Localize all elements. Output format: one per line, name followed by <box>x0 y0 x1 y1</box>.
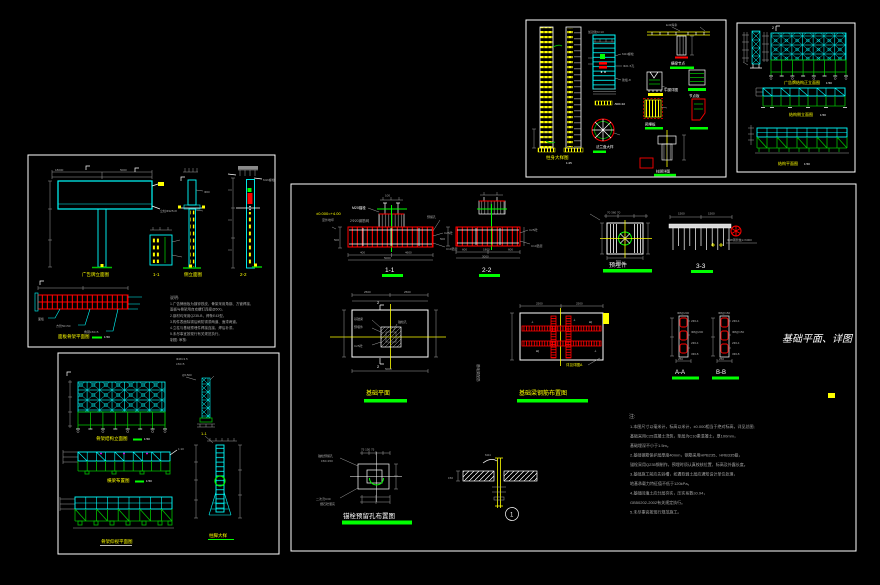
bb-r1: Φ8@150 <box>732 330 744 334</box>
anchor-ann-4: 细石砼灌实 <box>320 501 335 506</box>
side-elevation-label: 结构侧立面图 <box>789 111 813 117</box>
dim-600b: 600 <box>508 248 513 252</box>
plan-ann-3: C25砼 <box>354 343 363 348</box>
small-col-label: 1-1 <box>201 431 208 436</box>
section-flag <box>776 26 780 31</box>
beam-layout-truss <box>63 450 177 474</box>
elevation-text: ±0.000=+4.00 <box>316 211 341 216</box>
frame-elev-underline <box>133 439 142 441</box>
aa-dim: 250 <box>678 357 683 361</box>
col-ann-3: Φ21.5孔 <box>623 63 634 68</box>
section-bb-label: B-B <box>716 370 726 376</box>
dim-4600: 4600 <box>405 251 412 255</box>
plan-ann-2: 预埋件 <box>354 324 363 329</box>
anchor-ann-2: 150×150 <box>321 459 333 463</box>
aa-r3: 3Φ18 <box>691 352 699 356</box>
column-foot-detail <box>194 436 242 518</box>
section-b-b-figure <box>711 316 732 363</box>
side-elevation-truss <box>756 88 847 108</box>
col-ann-5: -500×10 <box>614 102 625 106</box>
gusset-label: 节点板 <box>689 93 700 98</box>
title-block-mark <box>828 393 835 398</box>
section-aa-underline <box>672 377 699 380</box>
hole-text: 预留孔 <box>427 214 436 219</box>
anchor-hole-layout-figure <box>340 451 402 504</box>
dim-1500b: 1500 <box>708 212 715 216</box>
plan-ann-4: 锚栓孔 <box>398 319 407 324</box>
corner-ann-2: L50×5 <box>176 362 185 366</box>
pedestal-dim: 100 <box>385 194 390 198</box>
note-line: GB50202-2002有关规定执行。 <box>630 499 685 505</box>
note-line: 2.钢材均采用Q235-B，焊条E43型。 <box>170 313 226 318</box>
note-line: 4.立柱与基础预埋件焊接连接，焊后补漆。 <box>170 325 236 330</box>
plan-label: 基础平面 <box>366 389 390 397</box>
front-elevation-scale: 1:50 <box>826 81 832 85</box>
bb-r0: 2Φ14 <box>732 319 740 323</box>
cad-sheet: 柱身大样图 1:25 加劲肋δ=10 M24螺栓 Φ21.5孔 肋板-8 -50… <box>0 0 880 585</box>
front-elevation-label: 广告牌结构正立面图 <box>784 79 820 85</box>
frame-elev-label: 骨架结构立面图 <box>96 435 128 442</box>
note-line: 4.基础回填土应分层夯实，压实系数≥0.94， <box>630 490 707 496</box>
rebar-label: 基础梁钢筋布置图 <box>519 389 567 397</box>
leader-panel: 面板 <box>38 316 44 321</box>
section-2-2-label: 2-2 <box>482 267 492 274</box>
leader-tube: 方管50×50 <box>56 323 71 328</box>
bb-r3: 3Φ18 <box>732 352 740 356</box>
dim-1500a: 1500 <box>678 212 685 216</box>
sheet-title: 基础平面、详图 <box>782 333 854 345</box>
anchor-layout-label: 锚栓预留孔布置图 <box>343 511 395 520</box>
foundation-notes: 注: 1.本图尺寸以毫米计，标高以米计，±0.000相当于绝对标高，详见总图; … <box>629 413 755 515</box>
col-ann-4: 肋板-8 <box>622 77 631 82</box>
rebar-ref-text: 详见详图A <box>566 362 583 367</box>
plan-truss-label: 结构平面图 <box>778 160 798 166</box>
anchor-ann-1: 锚栓预留孔 <box>318 453 333 458</box>
small-column-detail <box>186 376 215 427</box>
note-line: 制图: 审核: <box>170 337 187 342</box>
side-elev-label: 侧立面图 <box>184 271 202 278</box>
billboard-rear-elevation <box>228 166 262 268</box>
foundation-plan-figure <box>330 293 446 373</box>
anchor-ann-3: 二次浇C30 <box>316 496 331 501</box>
notes-block: 说明: 1.广告牌面板为镀锌铁皮，骨架采用角钢、方管焊接， 面板与骨架用自攻螺钉… <box>170 294 253 342</box>
section-3-3-underline <box>691 270 713 273</box>
note-line: 5.未尽事宜按现行规范施工。 <box>630 509 681 515</box>
small-col-ann: @1500 <box>182 373 192 377</box>
aa-top: Φ8@200 <box>677 311 689 315</box>
cushion-text-2: C10垫层 <box>531 243 543 248</box>
note-line: 3.构件表面除锈后刷防锈漆两道、面漆两道。 <box>170 319 239 324</box>
panel-plan-label: 面板骨架平面图 <box>58 333 90 340</box>
frame-elevation-grid <box>67 372 167 433</box>
panel-column-details: 柱身大样图 1:25 加劲肋δ=10 M24螺栓 Φ21.5孔 肋板-8 -50… <box>526 20 726 177</box>
callout-number: 1 <box>510 513 514 519</box>
col-ann-1: 加劲肋δ=10 <box>588 29 604 34</box>
corner-plate-detail <box>690 99 708 130</box>
plan-underline <box>364 399 407 403</box>
billboard-front-elevation <box>48 166 164 268</box>
plan-ann-1: 基础梁 <box>354 316 363 321</box>
column-base-detail <box>640 130 686 168</box>
notes-title: 注: <box>629 413 635 420</box>
drawing-canvas: 柱身大样图 1:25 加劲肋δ=10 M24螺栓 Φ21.5孔 肋板-8 -50… <box>0 0 880 585</box>
section-1-1-underline <box>382 274 403 277</box>
section-1-1-label: 1-1 <box>385 267 395 274</box>
section-marker-2: 2 <box>772 26 774 30</box>
m20-anchor-text: M20锚栓 <box>352 205 366 210</box>
bolt-dim: 150 <box>448 476 453 480</box>
column-foot-label: 柱脚大样 <box>209 532 227 539</box>
section-a-a-figure <box>670 316 691 363</box>
ann-pipe: Φ60 <box>204 190 210 194</box>
bb-top: Φ8@150 <box>718 311 730 315</box>
note-line: 锚栓采用Q235钢制作，预埋时须认真校核位置、标高及外露长度。 <box>630 461 748 467</box>
panel-border <box>526 20 726 177</box>
rebar-underline <box>517 399 588 403</box>
note-line: 1.广告牌面板为镀锌铁皮，骨架采用角钢、方管焊接， <box>170 301 253 306</box>
section-1-1-label: 1-1 <box>153 272 160 277</box>
section-2-2-underline <box>479 274 500 277</box>
panel-foundation-details: M20锚栓 100 2Φ20钢筋网 ±0.000=+4.00 室外地坪 500 … <box>291 184 856 551</box>
note-line: 1.本图尺寸以毫米计，标高以米计，±0.000相当于绝对标高，详见总图; <box>630 423 755 429</box>
rebar-dim-a: 2500 <box>536 302 543 306</box>
bb-r2: 2Φ14 <box>732 341 740 345</box>
section-3-3-label: 3-3 <box>696 263 706 270</box>
panel-frame-structure: Φ48×3.5 L50×5 骨架结构立面图 1:50 @1500 1-1 1:1… <box>58 353 279 554</box>
ann-bolt: M16螺栓 <box>263 177 275 182</box>
rear-elev-label: 2-2 <box>240 272 247 277</box>
bolt-ground-detail <box>456 458 537 521</box>
dim-400: 400 <box>360 251 365 255</box>
note-line: 面板与骨架用自攻螺钉连接@500。 <box>170 307 225 312</box>
vertical-note: 基础梁配筋 <box>476 364 481 382</box>
anchor-dim-top: 75 150 75 <box>361 448 375 452</box>
anchor-layout-underline <box>342 521 412 525</box>
panel-frame-plan <box>35 281 142 331</box>
rebar-plan-figure <box>510 304 609 366</box>
aa-r2: 2Φ14 <box>691 341 699 345</box>
column-detail-scale: 1:25 <box>566 161 572 165</box>
note-line: 基础采用C25混凝土浇筑，垫层为C10素混凝土，厚100mm， <box>630 433 738 439</box>
dim-5000: 5000 <box>384 256 391 260</box>
aa-r1: Φ8@200 <box>691 330 703 334</box>
beam-layout-label: 横梁布置图 <box>107 477 130 484</box>
base-label: 柱脚详图 <box>656 169 670 174</box>
beam-layout-underline <box>135 481 144 483</box>
plan-truss <box>748 125 849 153</box>
beam-node-underline <box>670 67 694 70</box>
rebar-mark-1: ⊥ <box>531 320 534 324</box>
col-ann-2: M24螺栓 <box>622 51 634 56</box>
ann-column: 立柱Φ325×8 <box>160 208 177 213</box>
pile-note: Φ48钢管桩L=6000 <box>727 237 752 242</box>
section-3-3-figure <box>669 215 757 250</box>
column-section-1-1 <box>150 227 182 265</box>
bracket-label: 牛腿详图 <box>664 87 678 92</box>
flange-label: 法兰盘大样 <box>596 144 614 149</box>
embed-dims: 70 360 70 <box>607 211 621 215</box>
column-detail-label: 柱身大样图 <box>546 154 569 161</box>
dim-1800: 1800 <box>483 248 490 252</box>
truss-ann: 1:10 <box>178 447 184 451</box>
corner-ann-1: Φ48×3.5 <box>176 357 188 361</box>
dim-3000: 3000 <box>482 255 489 259</box>
ground-text: 室外地坪 <box>322 217 334 222</box>
plate-label: 预埋板 <box>645 122 656 127</box>
aa-r0: 2Φ14 <box>691 319 699 323</box>
front-elevation-grid <box>769 33 848 80</box>
billboard-side-elevation <box>178 168 205 268</box>
dim-500-2: 500 <box>440 237 445 241</box>
flange-underline <box>593 151 606 154</box>
panel-plan-scale: 1:50 <box>104 335 110 339</box>
c25-text-2: C25砼 <box>529 227 538 232</box>
note-line: 5.未尽事宜按现行有关规范执行。 <box>170 331 222 336</box>
section-1-1-figure <box>332 197 445 260</box>
weld-text: M24 <box>485 453 491 457</box>
base-underline <box>654 174 676 177</box>
rebar-dim-b: 2500 <box>576 302 583 306</box>
flange-detail <box>592 119 620 141</box>
beam-node-ann: E43焊条 <box>666 22 677 27</box>
dim-600a: 600 <box>462 248 467 252</box>
plan-dim-a: 2500 <box>364 290 371 294</box>
rebar-mark-3: A| <box>536 349 539 353</box>
c25-text: C25砼 <box>444 230 453 235</box>
plan-dim-b: 2500 <box>404 290 411 294</box>
bb-dim: 250 <box>719 357 724 361</box>
front-elev-label: 广告牌立面图 <box>82 271 109 278</box>
bottom-plan-truss <box>60 497 174 528</box>
frame-elev-scale: 1:50 <box>144 437 150 441</box>
rebar-mark-4: ⊥ <box>573 318 576 322</box>
plan-dim-bottom: 5000 <box>385 367 392 371</box>
note-line: 3.基础施工前应先验槽，如遇软弱土层应通知设计单位处理， <box>630 471 737 477</box>
dim-18000: 18000 <box>55 168 64 172</box>
beam-node-label: 横梁节点 <box>671 61 685 66</box>
note-line: 2.基础钢筋保护层厚度40mm，钢筋采用HPB235、HRB335级， <box>630 452 742 458</box>
panel-plan-underline <box>92 337 102 339</box>
column-elevation-ladder <box>532 27 583 152</box>
side-elevation-scale: 1:50 <box>820 113 826 117</box>
bracket-detail <box>647 72 667 96</box>
plan-truss-scale: 1:50 <box>804 162 810 166</box>
panel-billboard-elevations: 广告牌立面图 1-1 侧立面图 2-2 18000 5000 <box>28 155 275 347</box>
panel-structure-elevations: 2 广告牌结构正立面图 1:50 结构侧立面图 1:50 结构平面图 1:50 <box>737 23 855 172</box>
note-line: 地基承载力特征值不低于120kPa。 <box>630 480 692 486</box>
embed-label: 预埋件 <box>609 261 627 269</box>
mini-column-details <box>742 31 769 68</box>
gusset-detail <box>688 70 706 91</box>
section-bb-underline <box>712 377 739 380</box>
embedded-part-figure <box>590 214 652 260</box>
rebar-mark-5: ⊥ <box>594 349 597 353</box>
note-line: 基础埋深不小于1.5m。 <box>630 442 671 448</box>
dim-500-left: 500 <box>334 238 339 242</box>
section-aa-label: A-A <box>675 370 685 376</box>
notes-title: 说明: <box>170 294 179 300</box>
column-section-detail <box>588 35 622 105</box>
rebar-mark-2: A| <box>589 320 592 324</box>
beam-node-detail <box>647 27 710 58</box>
beam-layout-scale: 1:50 <box>146 479 152 483</box>
embed-underline <box>603 269 652 273</box>
mesh-text: 2Φ20钢筋网 <box>350 218 370 223</box>
dim-5000: 5000 <box>120 168 127 172</box>
plan-marker-bottom: 2 <box>377 364 380 369</box>
bottom-plan-label: 骨架仰视平面图 <box>101 538 133 545</box>
